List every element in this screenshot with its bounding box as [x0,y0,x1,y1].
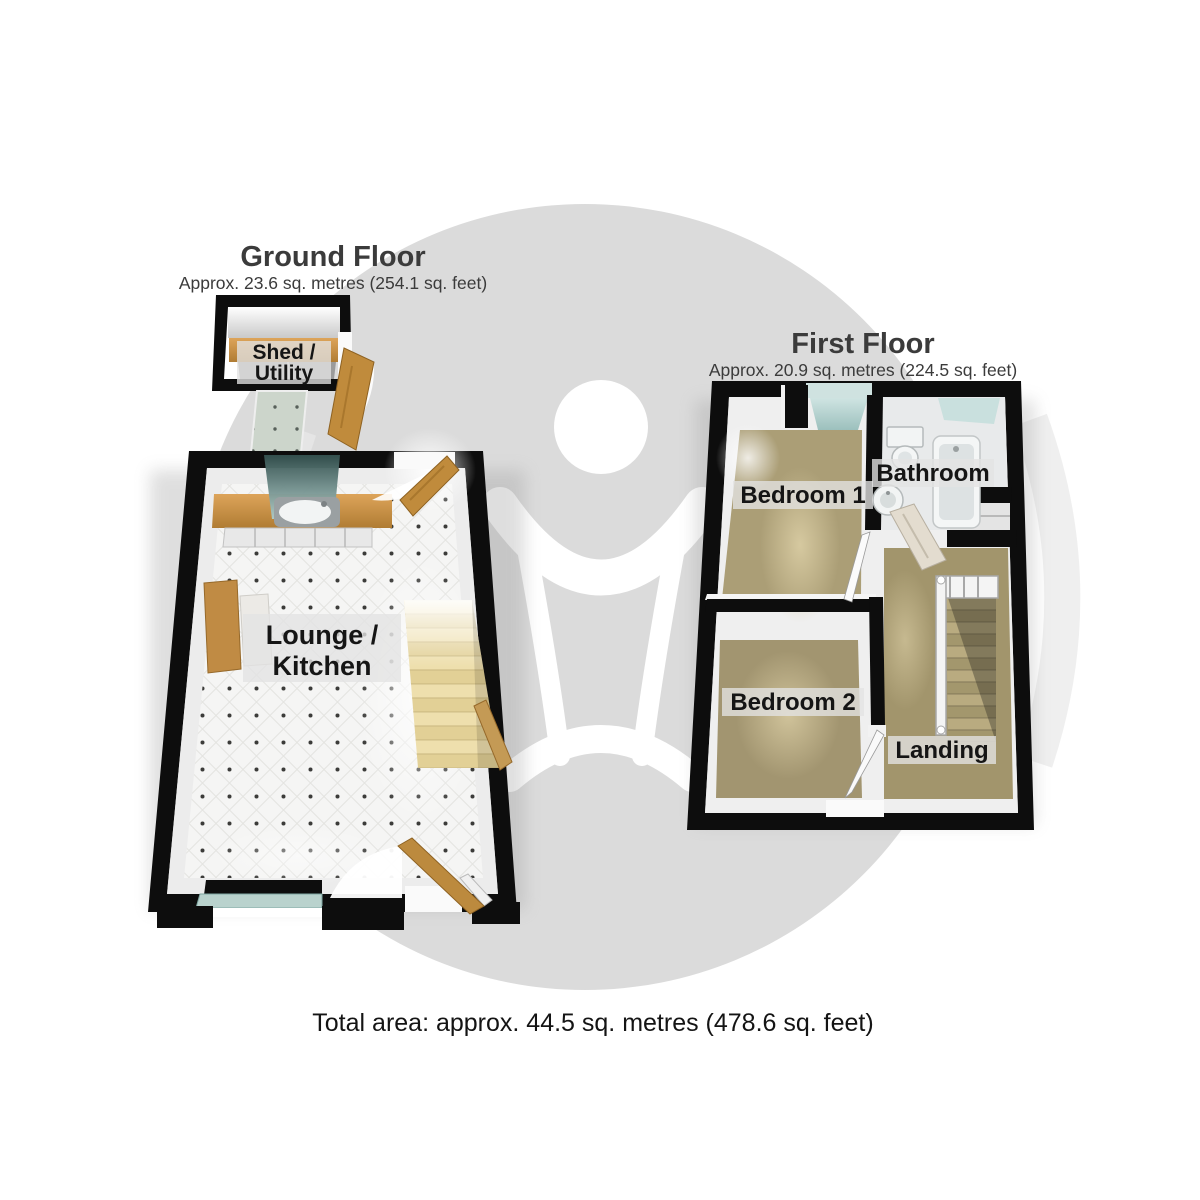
ground-floor-subtitle: Approx. 23.6 sq. metres (254.1 sq. feet) [179,273,487,293]
total-area-text: Total area: approx. 44.5 sq. metres (478… [312,1009,873,1037]
first-floor-staircase [936,576,998,742]
first-floor-subtitle: Approx. 20.9 sq. metres (224.5 sq. feet) [709,360,1017,380]
passage [251,391,307,453]
bathroom-label: Bathroom [872,459,994,487]
landing-label: Landing [888,736,996,764]
first-floor-plan: First Floor Approx. 20.9 sq. metres (224… [687,328,1034,830]
chimney-breast [781,385,808,428]
ground-floor-title: Ground Floor [240,241,425,273]
lounge-kitchen-room: Lounge / Kitchen [148,428,520,930]
stairwell-opening [826,800,884,817]
svg-text:Utility: Utility [255,362,314,385]
bedroom1-label: Bedroom 1 [733,481,873,509]
front-window [196,880,322,917]
svg-text:Shed /: Shed / [252,341,315,364]
first-floor-title: First Floor [791,328,934,360]
svg-text:Bedroom 2: Bedroom 2 [730,689,855,716]
lounge-label: Lounge / Kitchen [243,614,401,682]
svg-text:Bathroom: Bathroom [876,460,989,487]
svg-text:Landing: Landing [895,737,988,764]
wall-bed2-landing [869,597,885,725]
svg-text:Lounge /: Lounge / [266,620,379,650]
shed-label: Shed / Utility [237,341,331,385]
first-floor-shell: Bedroom 1 Bathroom Bedroom 2 Landing [687,381,1034,830]
bedroom2-label: Bedroom 2 [722,688,864,716]
bathroom-window [938,398,1000,424]
svg-text:Kitchen: Kitchen [272,651,371,681]
floorplan-canvas: Ground Floor Approx. 23.6 sq. metres (25… [0,0,1200,1200]
svg-text:Bedroom 1: Bedroom 1 [740,482,865,509]
kitchen-cabinets [223,528,372,547]
floorplan-page: Ground Floor Approx. 23.6 sq. metres (25… [0,0,1200,1200]
kitchen-sink [274,497,340,527]
